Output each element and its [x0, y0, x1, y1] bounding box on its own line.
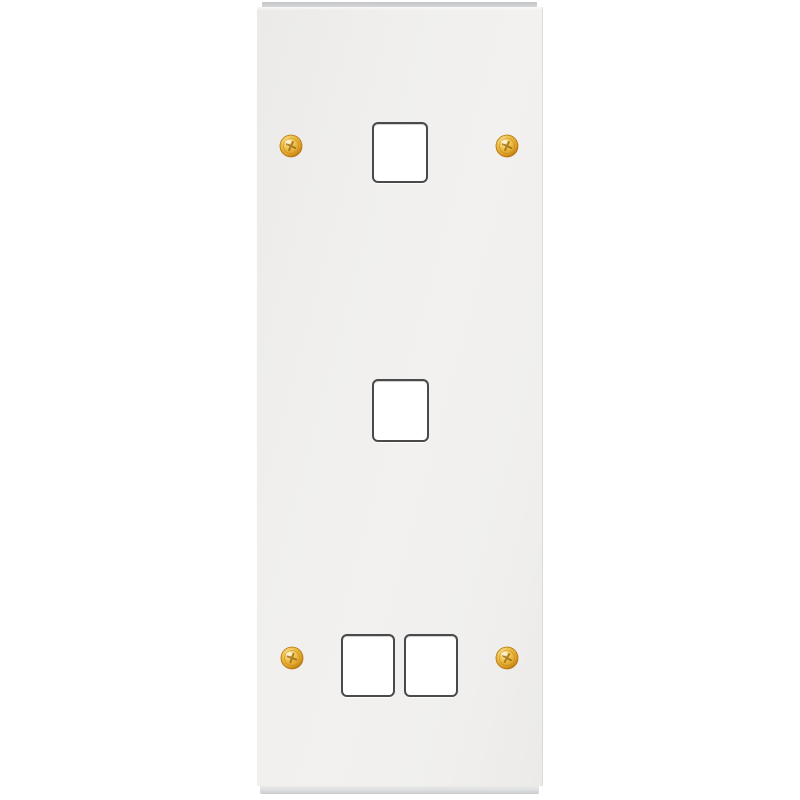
module-aperture-top — [372, 122, 428, 183]
brass-screw-icon — [280, 646, 304, 670]
brass-screw-icon — [495, 134, 519, 158]
module-aperture-middle — [372, 379, 429, 442]
brass-screw-icon — [279, 134, 303, 158]
module-aperture-bottom-left — [341, 634, 395, 697]
product-photo-stage — [0, 0, 800, 800]
brass-screw-icon — [495, 646, 519, 670]
module-aperture-bottom-right — [404, 634, 458, 697]
faceplate-bottom-edge — [260, 786, 539, 794]
